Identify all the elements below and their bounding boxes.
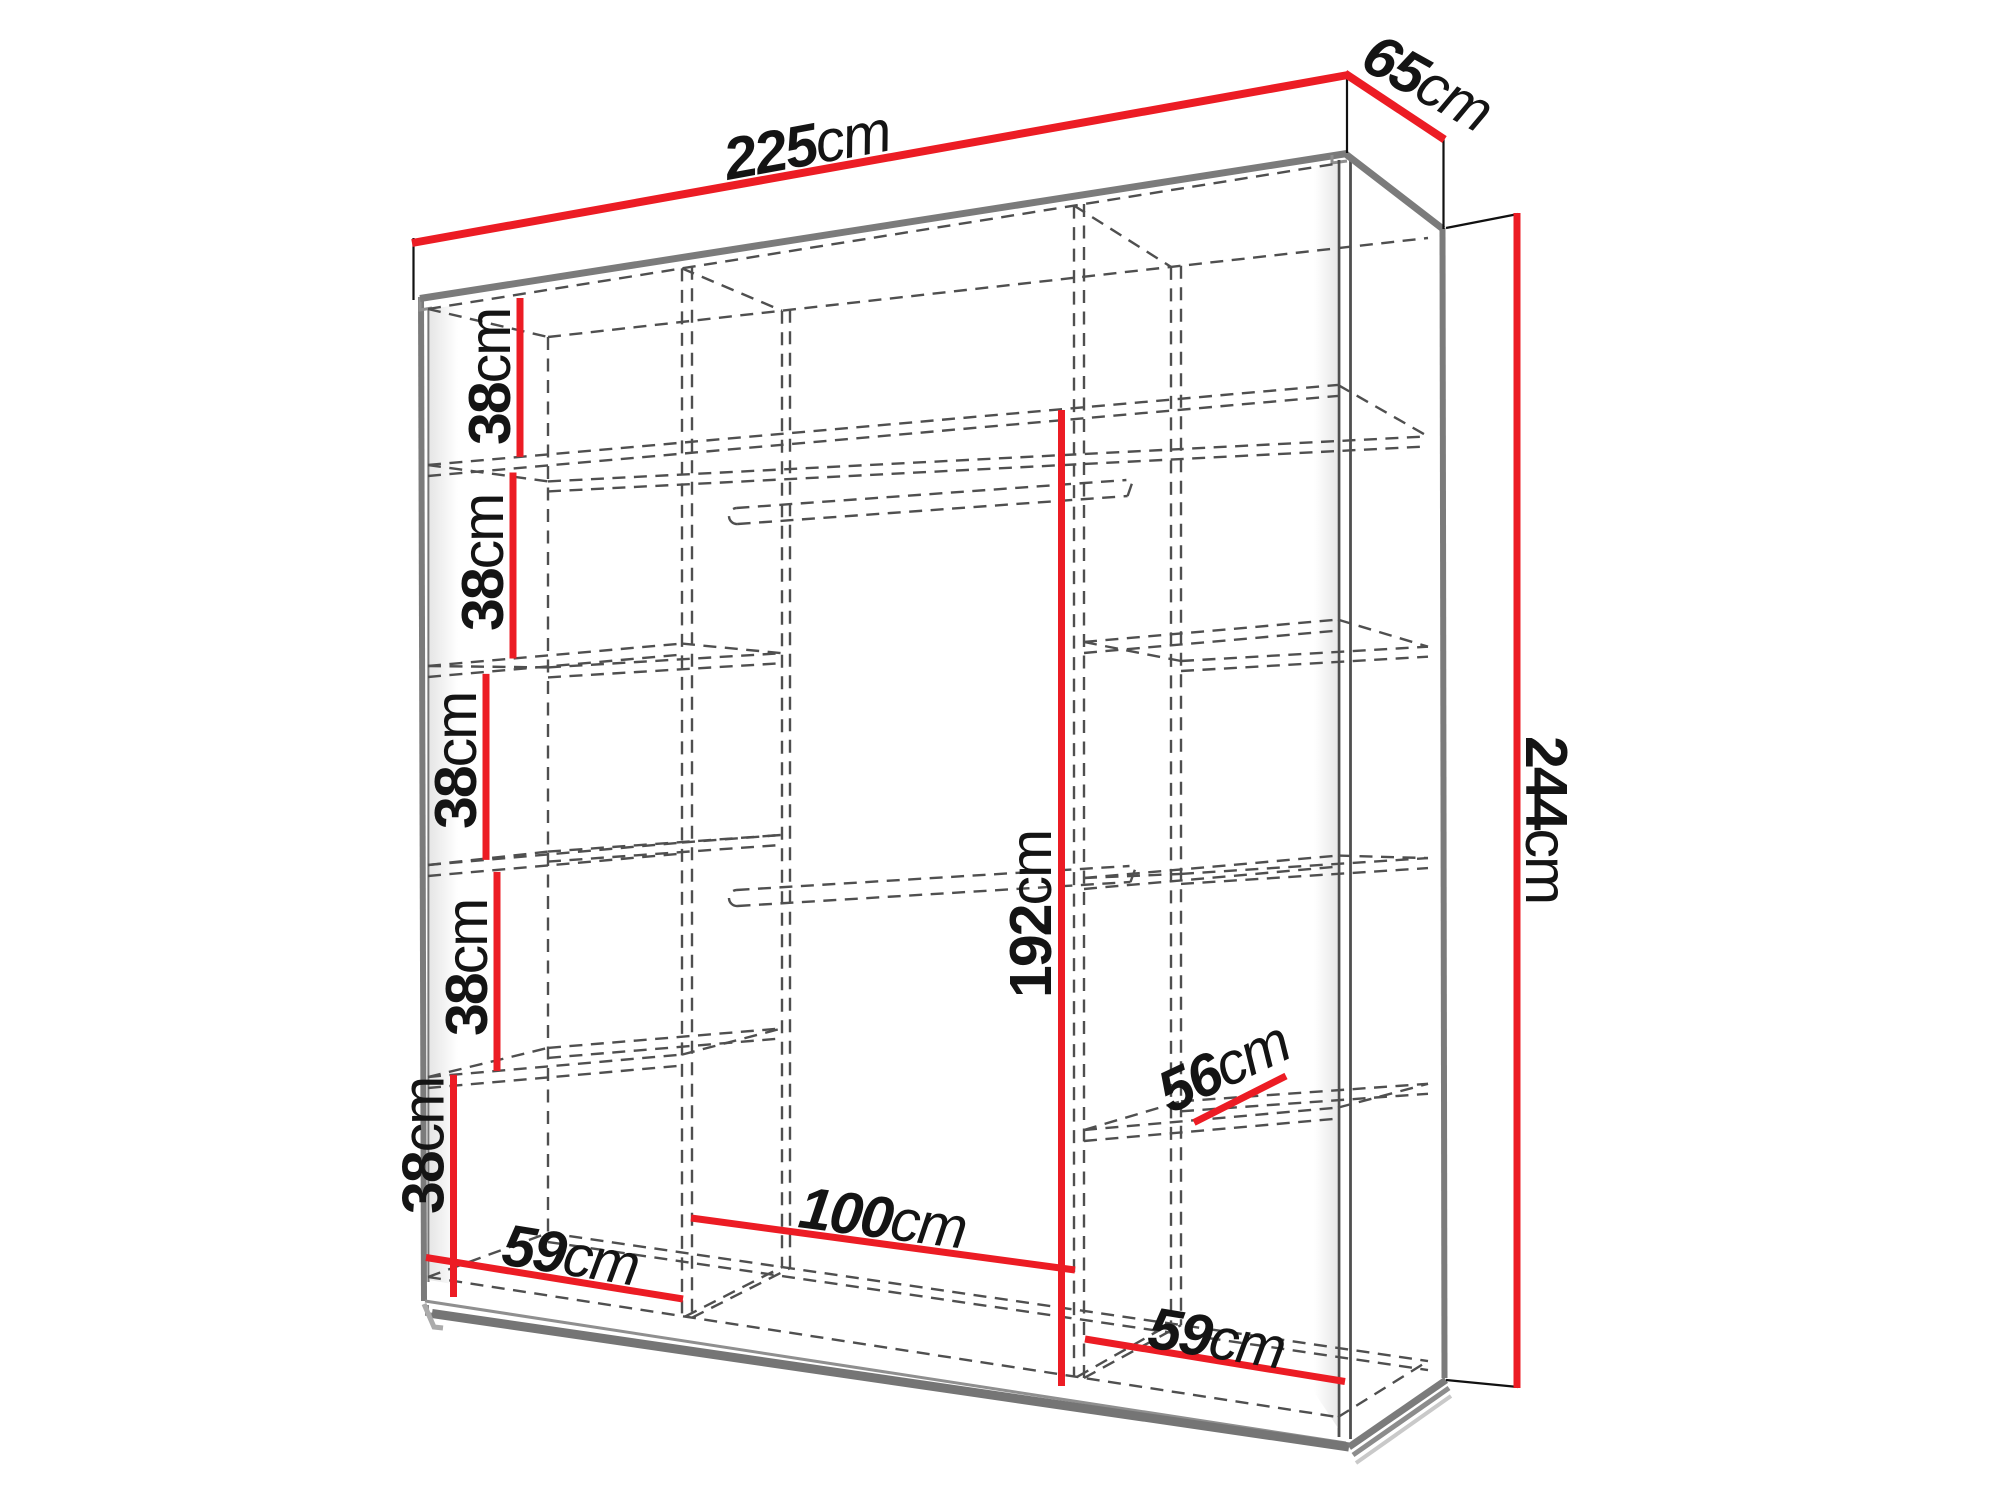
svg-text:38cm: 38cm xyxy=(457,309,523,445)
svg-text:38cm: 38cm xyxy=(423,693,489,829)
svg-text:244cm: 244cm xyxy=(1513,736,1579,903)
svg-text:192cm: 192cm xyxy=(998,831,1064,998)
svg-text:38cm: 38cm xyxy=(450,495,516,631)
svg-text:38cm: 38cm xyxy=(434,900,500,1036)
svg-text:38cm: 38cm xyxy=(391,1078,457,1214)
